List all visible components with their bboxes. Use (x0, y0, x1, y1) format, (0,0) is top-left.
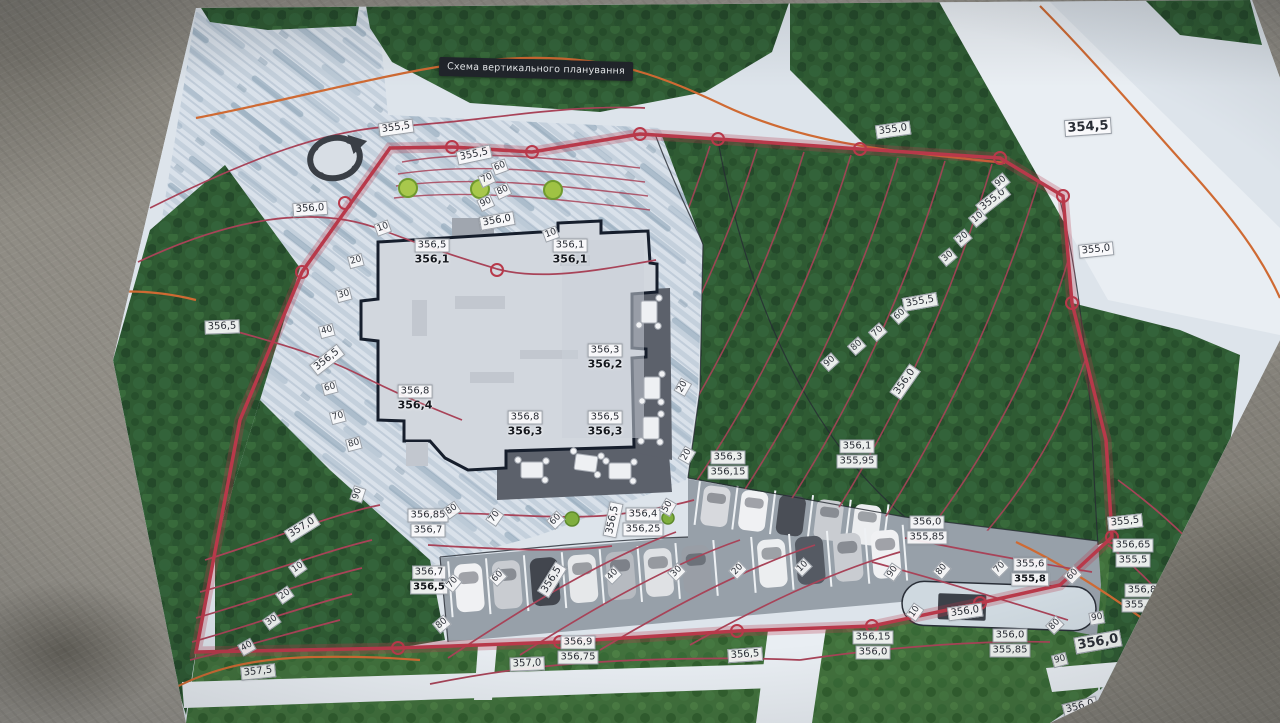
site-plan-drawing (0, 0, 1280, 723)
building-footprint (361, 218, 672, 500)
plan-sheet: 355,5355,0354,5355,0355,0355,5356,5355,5… (0, 0, 1280, 723)
drive-island (901, 581, 1096, 632)
photo-scene: 355,5355,0354,5355,0355,0355,5356,5355,5… (0, 0, 1280, 723)
